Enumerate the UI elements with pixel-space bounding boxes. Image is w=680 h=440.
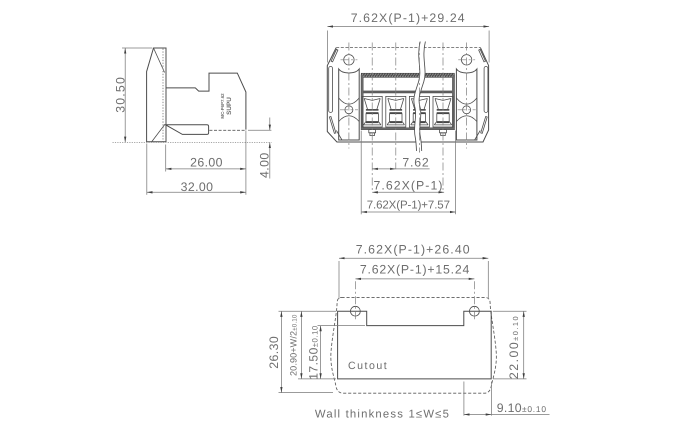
svg-text:4.00: 4.00: [257, 152, 271, 178]
svg-text:20.90+W/2±0.10: 20.90+W/2±0.10: [289, 314, 299, 376]
svg-text:26.00: 26.00: [190, 155, 223, 169]
svg-text:7.62: 7.62: [402, 155, 429, 169]
svg-text:9.10±0.10: 9.10±0.10: [497, 401, 547, 415]
svg-text:MC-P6P7.62: MC-P6P7.62: [220, 93, 225, 119]
svg-text:17.50±0.10: 17.50±0.10: [307, 325, 321, 380]
svg-text:SUPU: SUPU: [226, 97, 233, 115]
svg-text:7.62X(P-1)+15.24: 7.62X(P-1)+15.24: [360, 263, 470, 277]
svg-text:7.62X(P-1)+29.24: 7.62X(P-1)+29.24: [351, 11, 466, 25]
svg-text:7.62X(P-1)+26.40: 7.62X(P-1)+26.40: [356, 242, 471, 256]
svg-text:26.30: 26.30: [267, 336, 281, 369]
svg-text:22.00±0.10: 22.00±0.10: [507, 315, 521, 379]
svg-text:30.50: 30.50: [113, 76, 127, 113]
svg-text:Cutout: Cutout: [348, 360, 388, 372]
svg-text:7.62X(P-1): 7.62X(P-1): [374, 179, 444, 193]
svg-text:7.62X(P-1)+7.57: 7.62X(P-1)+7.57: [367, 200, 450, 212]
svg-text:32.00: 32.00: [181, 180, 214, 194]
svg-text:Wall thinkness 1≤W≤5: Wall thinkness 1≤W≤5: [315, 408, 450, 420]
